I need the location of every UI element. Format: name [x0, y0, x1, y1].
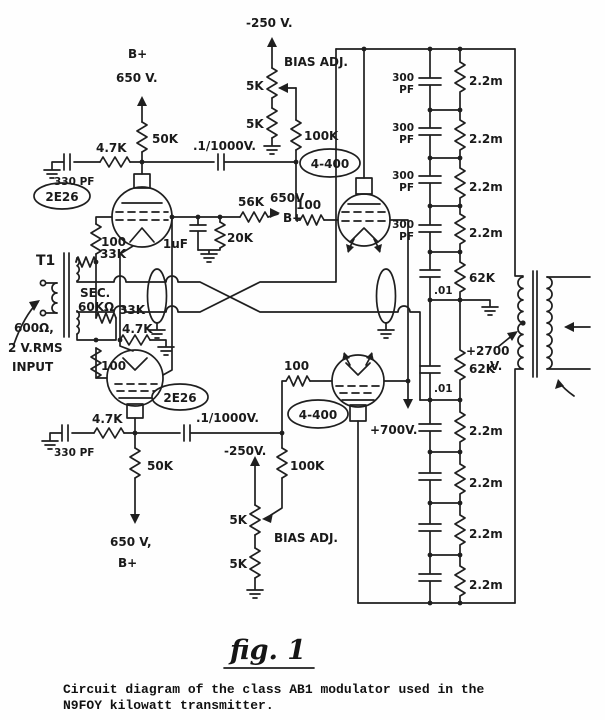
label-2700-v: V.: [490, 359, 502, 373]
primary-terminal: [40, 310, 45, 315]
tube-filament: [123, 358, 147, 370]
primary-winding: [52, 283, 57, 313]
capacitor-330pf-upper-and-ground: [44, 154, 100, 178]
capacitor-1uf: [190, 217, 206, 250]
junction-dot: [428, 204, 433, 209]
resistor-100-grid: [286, 376, 310, 386]
coupling-wire-a: [77, 276, 420, 400]
label-100: 100: [284, 359, 309, 373]
screen-network-2e26: 1uF 20K 56K 650V B+: [163, 191, 305, 375]
label-2.2m: 2.2m: [469, 180, 503, 194]
arrowhead-right-650v: [270, 208, 280, 218]
bias-network-upper: -250 V. BIAS ADJ. 5K 5K 100K: [246, 16, 348, 162]
junction-dot: [94, 338, 99, 343]
resistor-100-grid: [300, 215, 324, 225]
label-300: 300: [392, 122, 414, 134]
junction-dot: [458, 156, 463, 161]
ground-symbol: [264, 138, 280, 154]
label-50k: 50K: [152, 132, 179, 146]
tube-filament: [130, 228, 154, 242]
label-4400-lower: 4-400: [299, 408, 337, 422]
label-650v-bot: 650 V,: [110, 535, 152, 549]
label-2.2m: 2.2m: [469, 424, 503, 438]
resistor-50k-lower: [130, 448, 140, 478]
scanned-schematic-page: -250 V. BIAS ADJ. 5K 5K 100K B+ 650 V. 5…: [0, 0, 605, 720]
junction-dot: [458, 204, 463, 209]
label-pf: PF: [399, 182, 414, 194]
secondary-leads: [547, 277, 590, 369]
arrowhead-wiper-upper: [278, 83, 288, 93]
label-bias-adj-bot: BIAS ADJ.: [274, 531, 338, 545]
junction-dot: [428, 553, 433, 558]
wire: [96, 318, 116, 340]
cable-shield-left: [148, 269, 167, 323]
label-33k: 33K: [119, 303, 146, 317]
resistor-100k-lower: [277, 448, 287, 478]
primary-tap-dot: [520, 320, 525, 325]
junction-dot: [140, 160, 145, 165]
label-100k: 100K: [290, 459, 325, 473]
label-100k: 100K: [304, 129, 339, 143]
label-coupling-cap-upper: .1/1000V.: [193, 139, 256, 153]
junction-dot: [196, 215, 201, 220]
shield-ground-right: [378, 323, 394, 338]
junction-dot: [428, 501, 433, 506]
junction-dot: [428, 250, 433, 255]
figure-caption: fig. 1 Circuit diagram of the class AB1 …: [63, 635, 484, 713]
label-5k: 5K: [229, 557, 247, 571]
label-minus-250v-top: -250 V.: [246, 16, 293, 30]
resistor-20k: [215, 222, 225, 248]
caption-line-1: Circuit diagram of the class AB1 modulat…: [63, 682, 484, 697]
label-62k: 62K: [469, 271, 496, 285]
label-2.2m: 2.2m: [469, 476, 503, 490]
junction-dot: [133, 431, 138, 436]
driver-plate-network-lower: 4.7K 330 PF 50K 650 V, B+ .1/1000V.: [42, 411, 284, 570]
label-100: 100: [296, 198, 321, 212]
junction-dot: [406, 379, 411, 384]
coupling-cap-upper: [142, 154, 296, 170]
resistor-100k-upper: [291, 120, 301, 150]
label-bplus-bot: B+: [118, 556, 137, 570]
label-2e26-upper: 2E26: [45, 190, 78, 204]
junction-dot: [218, 215, 223, 220]
secondary-winding: [547, 277, 552, 369]
center-ground: [430, 300, 498, 315]
label-2vrms: 2 V.RMS: [8, 341, 63, 355]
label-sec: SEC.: [80, 286, 110, 300]
label-plus-700v: +700V.: [370, 423, 417, 437]
label-330pf: 330 PF: [54, 447, 94, 459]
arrowhead-down-650v: [130, 514, 140, 524]
resistor-4.7k-cathode: [120, 335, 150, 345]
label-300: 300: [392, 219, 414, 231]
resistor-column-top: [455, 49, 465, 300]
junction-dot: [94, 260, 99, 265]
ground-symbol: [198, 248, 220, 262]
label-2.2m: 2.2m: [469, 578, 503, 592]
crossed-coupling-pair: [77, 49, 420, 400]
junction-dot: [458, 501, 463, 506]
label-coupling-cap-lower: .1/1000V.: [196, 411, 259, 425]
label-4.7k: 4.7K: [96, 141, 127, 155]
label-4.7k: 4.7K: [92, 412, 123, 426]
label-01: .01: [434, 383, 453, 395]
right-border-bottom: [515, 369, 523, 603]
resistor-56k: [240, 212, 268, 222]
feedback-divider-column: 300 PF 300 PF 300 PF 300 PF .01 .01 2.2m…: [336, 47, 515, 606]
junction-dot: [428, 156, 433, 161]
label-330pf: 330 PF: [54, 176, 94, 188]
label-1uf: 1uF: [163, 237, 188, 251]
label-pf: PF: [399, 231, 414, 243]
transformer-core: [533, 271, 537, 377]
tube-grid-lines: [336, 386, 380, 393]
wiper-wire: [271, 478, 282, 515]
label-bplus: B+: [128, 47, 147, 61]
label-300: 300: [392, 72, 414, 84]
junction-dot: [118, 338, 123, 343]
tube-4400-lower: 4-400 100 +700V.: [282, 352, 417, 603]
label-pf: PF: [399, 84, 414, 96]
secondary-winding-lower: [77, 311, 79, 334]
right-border-top: [515, 49, 523, 276]
resistor-4.7k-lower: [94, 428, 124, 438]
resistor-5k-upper: [267, 108, 277, 138]
label-2e26-lower: 2E26: [163, 391, 196, 405]
junction-dot: [428, 450, 433, 455]
tube-plate-cap: [356, 178, 372, 194]
junction-dot: [458, 601, 463, 606]
junction-dot: [428, 108, 433, 113]
junction-dot: [428, 398, 433, 403]
grid-wire: [96, 217, 112, 224]
label-input: INPUT: [12, 360, 54, 374]
label-2.2m: 2.2m: [469, 132, 503, 146]
label-pf: PF: [399, 134, 414, 146]
junction-dot: [458, 298, 463, 303]
label-56k: 56K: [238, 195, 265, 209]
label-t1: T1: [36, 253, 55, 269]
tube-grid-lines: [115, 384, 157, 391]
junction-dot: [428, 298, 433, 303]
junction-dot: [458, 47, 463, 52]
label-5k: 5K: [246, 117, 264, 131]
primary-terminal: [40, 280, 45, 285]
arrowhead-wiper-lower: [262, 513, 273, 523]
bias-network-lower: 100K -250V. 5K BIAS ADJ. 5K: [224, 433, 338, 598]
potentiometer-5k-upper: [267, 68, 277, 98]
label-plus-2700: +2700: [466, 344, 509, 358]
tube-grid-lines: [116, 212, 168, 220]
coupling-wire-b: [77, 49, 336, 312]
junction-dot: [428, 47, 433, 52]
label-bias-adj-top: BIAS ADJ.: [284, 55, 348, 69]
resistor-50k-upper: [137, 122, 147, 152]
junction-dot: [458, 553, 463, 558]
label-300: 300: [392, 170, 414, 182]
resistor-5k-lower: [250, 548, 260, 578]
junction-dot: [458, 108, 463, 113]
resistor-4.7k-upper: [100, 157, 130, 167]
capacitor-330pf-lower-and-ground: [42, 425, 94, 449]
coupling-cap-lower: [135, 425, 282, 441]
label-5k: 5K: [229, 513, 247, 527]
label-4400-upper: 4-400: [311, 157, 349, 171]
label-2.2m: 2.2m: [469, 527, 503, 541]
junction-dot: [362, 47, 367, 52]
ground-symbol: [150, 340, 174, 355]
circuit-schematic: -250 V. BIAS ADJ. 5K 5K 100K B+ 650 V. 5…: [0, 0, 605, 720]
label-650v: 650 V.: [116, 71, 158, 85]
figure-number: fig. 1: [228, 635, 306, 666]
junction-dot: [428, 601, 433, 606]
junction-dot: [458, 450, 463, 455]
label-2.2m: 2.2m: [469, 74, 503, 88]
cable-shield-right: [377, 269, 396, 323]
caption-line-2: N9FOY kilowatt transmitter.: [63, 698, 274, 713]
label-20k: 20K: [227, 231, 254, 245]
ground-symbol: [247, 578, 263, 598]
tube-top-cap: [134, 174, 150, 188]
arrowhead-down-700v: [403, 399, 413, 409]
label-bplus-mid: B+: [283, 211, 302, 225]
tube-grid-lines: [342, 212, 386, 221]
tube-envelope: [338, 194, 390, 246]
label-4.7k: 4.7K: [122, 322, 153, 336]
secondary-winding-upper: [77, 258, 79, 281]
label-2.2m: 2.2m: [469, 226, 503, 240]
label-100: 100: [101, 359, 126, 373]
label-50k: 50K: [147, 459, 174, 473]
arrowhead-2700-tap: [507, 331, 518, 341]
label-01: .01: [434, 285, 453, 297]
arrowhead-secondary-mid: [564, 322, 574, 332]
junction-dot: [458, 250, 463, 255]
cap-column-top: [419, 49, 441, 300]
label-5k: 5K: [246, 79, 264, 93]
label-33k: 33K: [100, 247, 127, 261]
potentiometer-5k-lower: [250, 505, 260, 535]
resistor-33k-lower: [96, 313, 116, 323]
junction-dot: [458, 398, 463, 403]
wire: [77, 334, 96, 340]
transformer-core: [64, 253, 69, 337]
grid-feed-wire: [282, 381, 286, 433]
label-minus-250v-bot: -250V.: [224, 444, 266, 458]
